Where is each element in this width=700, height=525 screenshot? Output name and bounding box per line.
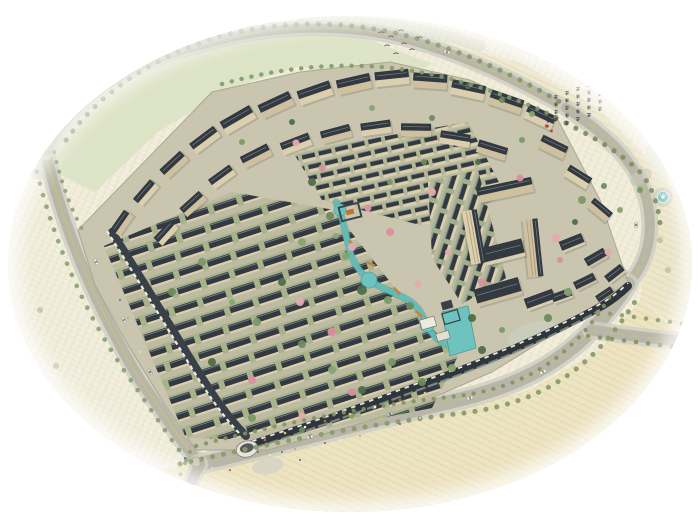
tree	[239, 139, 245, 145]
shopfront-dot	[304, 426, 307, 429]
pedestrian	[257, 451, 259, 453]
tree	[499, 327, 505, 333]
pedestrian	[229, 469, 231, 471]
calligraphy-character	[598, 107, 602, 111]
pedestrian	[211, 467, 213, 469]
tree	[448, 364, 456, 372]
tree	[387, 179, 393, 185]
pedestrian	[294, 448, 296, 450]
calligraphy-character	[587, 83, 591, 87]
blossom-tree	[296, 298, 304, 306]
brush-stroke	[599, 102, 602, 103]
pedestrian	[184, 457, 186, 459]
tree	[478, 346, 486, 354]
apartment-slab	[401, 123, 433, 139]
pedestrian	[127, 317, 129, 319]
tree	[326, 212, 334, 220]
pedestrian	[379, 429, 381, 431]
tree	[248, 414, 256, 422]
seal	[545, 124, 548, 127]
tree	[384, 296, 392, 304]
tree	[418, 378, 426, 386]
bird	[410, 49, 415, 50]
tree	[369, 105, 375, 111]
pedestrian	[119, 299, 121, 301]
tree	[333, 233, 339, 239]
blossom-tree	[386, 228, 394, 236]
blossom-tree	[552, 234, 560, 242]
tree	[475, 159, 481, 165]
pedestrian	[324, 442, 326, 444]
shopfront-dot	[264, 439, 267, 442]
calligraphy-character	[598, 99, 602, 103]
tree	[519, 137, 525, 143]
blossom-tree	[605, 249, 612, 256]
field-tree	[99, 465, 105, 471]
oval-vignette	[8, 16, 692, 512]
tree	[357, 285, 367, 295]
brush-stroke	[599, 95, 602, 96]
brush-stroke	[588, 93, 591, 94]
brush-stroke	[588, 86, 591, 87]
tree	[208, 358, 216, 366]
blossom-tree	[348, 388, 356, 396]
tree	[253, 318, 261, 326]
brush-stroke	[555, 113, 558, 114]
tree	[564, 288, 572, 296]
blossom-tree	[365, 205, 372, 212]
calligraphy-character	[598, 84, 602, 88]
tree	[499, 97, 505, 103]
blossom-tree	[478, 278, 486, 286]
field-tree	[131, 499, 137, 505]
shopfront-dot	[399, 399, 402, 402]
blossom-tree	[293, 140, 300, 147]
bird	[385, 45, 390, 46]
shopfront-dot	[349, 413, 352, 416]
tree	[578, 196, 586, 204]
tree	[601, 183, 607, 189]
blossom-tree	[328, 328, 337, 337]
brush-stroke	[599, 87, 602, 88]
tree	[429, 115, 435, 121]
calligraphy-character	[587, 90, 591, 94]
pedestrian	[139, 351, 141, 353]
shopfront-dot	[374, 406, 377, 409]
tree	[308, 178, 316, 186]
pedestrian	[281, 451, 283, 453]
tree	[328, 366, 336, 374]
pedestrian	[399, 423, 401, 425]
pedestrian	[299, 459, 301, 461]
brush-stroke	[599, 80, 602, 81]
field-tree	[665, 267, 671, 273]
architectural-rendering	[0, 0, 700, 525]
tree	[637, 187, 643, 193]
blossom-tree	[248, 376, 256, 384]
blossom-tree	[348, 243, 356, 251]
car-windshield	[635, 224, 638, 226]
shopfront-dot	[324, 420, 327, 423]
pedestrian	[199, 461, 201, 463]
pedestrian	[269, 454, 271, 456]
site-plan-scene	[8, 16, 692, 512]
tree	[544, 314, 552, 322]
calligraphy-column	[598, 77, 602, 111]
blossom-tree	[445, 249, 451, 255]
pedestrian	[249, 467, 251, 469]
field-tree	[73, 419, 79, 425]
brush-stroke	[588, 101, 591, 102]
tree	[289, 119, 295, 125]
tree	[278, 278, 286, 286]
pedestrian	[309, 445, 311, 447]
fountain	[658, 192, 669, 203]
tree	[529, 111, 535, 117]
tree	[342, 252, 350, 260]
tree	[617, 207, 623, 213]
tree	[168, 288, 176, 296]
pedestrian	[419, 417, 421, 419]
tree	[406, 302, 414, 310]
car	[634, 222, 638, 228]
tree	[468, 314, 476, 322]
tree	[572, 219, 578, 225]
calligraphy-character	[598, 92, 602, 96]
blossom-tree	[517, 175, 524, 182]
brush-stroke	[577, 90, 580, 91]
tree	[198, 258, 206, 266]
shopfront-dot	[424, 392, 427, 395]
field-tree	[37, 307, 43, 313]
calligraphy-character	[598, 77, 602, 81]
seal	[594, 74, 598, 78]
shopfront-dot	[284, 432, 287, 435]
tree	[298, 238, 306, 246]
blossom-tree	[557, 257, 563, 263]
calligraphy-character	[554, 110, 558, 114]
field-tree	[53, 363, 59, 369]
calligraphy-character	[587, 98, 591, 102]
tree	[388, 358, 396, 366]
tree	[421, 159, 427, 165]
pedestrian	[339, 439, 341, 441]
tree	[229, 299, 235, 305]
blossom-tree	[319, 165, 326, 172]
tree	[298, 340, 306, 348]
field-tree	[657, 237, 663, 243]
blossom-tree	[428, 188, 436, 196]
pedestrian	[359, 435, 361, 437]
tree	[358, 386, 366, 394]
calligraphy-character	[576, 87, 580, 91]
seal	[550, 130, 553, 133]
blossom-tree	[415, 281, 422, 288]
